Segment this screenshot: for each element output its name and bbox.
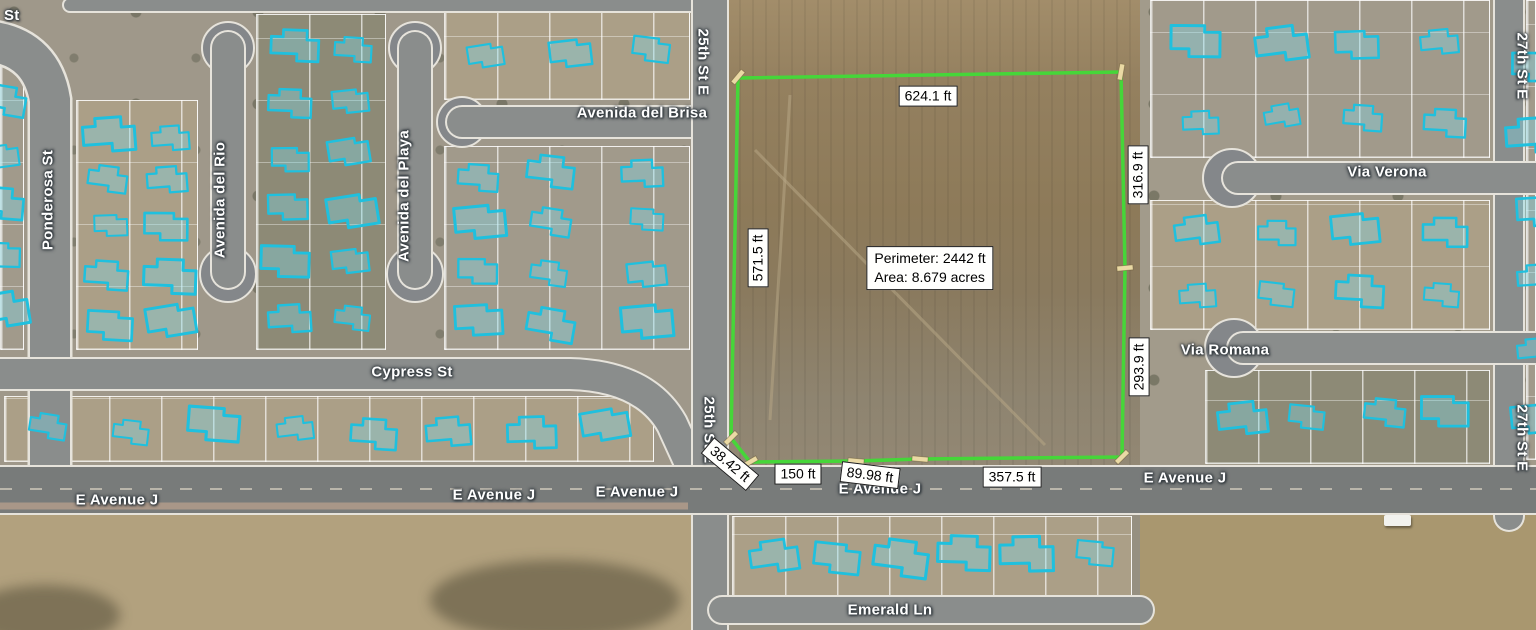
house-outline (331, 88, 369, 114)
house-outline (268, 303, 312, 333)
street-label-27th-st-top: 27th St E (1515, 33, 1530, 100)
house-outline (146, 165, 187, 194)
house-outline (1179, 283, 1216, 309)
house-outline (1335, 31, 1379, 59)
measurement-summary-area: Area: 8.679 acres (874, 268, 985, 287)
street-label-avenida-del-rio: Avenida del Rio (213, 142, 228, 258)
measure-label-left-edge: 571.5 ft (748, 229, 769, 288)
house-outline (84, 260, 129, 291)
house-outline (1173, 214, 1220, 248)
house-outline (813, 542, 861, 575)
house-outline (1420, 28, 1459, 56)
house-outline (87, 164, 129, 194)
house-outline (457, 163, 499, 192)
house-outline (454, 304, 503, 336)
measure-label-bottom-1: 150 ft (774, 464, 821, 485)
house-outline (270, 29, 319, 62)
map-graphics (0, 0, 1536, 630)
map-canvas[interactable]: St Ponderosa St Avenida del Rio Avenida … (0, 0, 1536, 630)
house-outline (87, 310, 133, 341)
measure-label-bottom-3: 357.5 ft (983, 467, 1042, 488)
house-outline (1217, 400, 1269, 437)
house-outline (467, 42, 505, 69)
house-outline (268, 89, 312, 118)
parked-truck (1384, 515, 1411, 526)
house-outline (1000, 536, 1054, 572)
house-outline (626, 260, 667, 288)
roads (0, 0, 1536, 630)
house-outline (151, 125, 190, 152)
house-outline (112, 419, 149, 446)
house-outline (350, 418, 397, 450)
street-label-avenida-del-playa: Avenida del Playa (397, 130, 412, 262)
street-label-e-avenue-j-5: E Avenue J (1144, 471, 1227, 486)
house-outline (1423, 218, 1467, 247)
house-outline (143, 259, 196, 295)
street-label-25th-st-top: 25th St E (696, 29, 711, 96)
street-label-via-romana: Via Romana (1181, 343, 1270, 358)
house-outline (526, 154, 576, 190)
house-outline (580, 406, 631, 443)
measurement-summary-perimeter: Perimeter: 2442 ft (874, 249, 985, 268)
house-outline (1288, 404, 1325, 429)
house-outline (0, 143, 20, 169)
house-outline (334, 37, 372, 63)
street-label-e-avenue-j-3: E Avenue J (596, 485, 679, 500)
street-label-emerald-ln: Emerald Ln (848, 603, 933, 618)
house-outline (261, 246, 310, 278)
house-outline (272, 148, 309, 172)
house-outline (1258, 281, 1295, 307)
house-outline (268, 194, 308, 220)
house-outline (276, 415, 314, 442)
house-outline (620, 303, 674, 340)
house-outline (872, 537, 930, 579)
street-label-27th-st-bottom: 27th St E (1515, 405, 1530, 472)
house-outline (529, 259, 568, 287)
measure-label-right-lower: 293.9 ft (1129, 338, 1150, 397)
measure-label-top-edge: 624.1 ft (899, 86, 958, 107)
measurement-summary: Perimeter: 2442 ft Area: 8.679 acres (866, 246, 993, 290)
house-outline (549, 38, 593, 68)
house-outline (621, 159, 663, 188)
measure-label-right-upper: 316.9 ft (1128, 146, 1149, 205)
house-outline (425, 416, 471, 448)
house-outline (82, 116, 136, 153)
house-outline (145, 302, 197, 340)
house-outline (1343, 104, 1383, 131)
house-outline (0, 243, 20, 267)
house-outline (525, 305, 577, 343)
house-outline (630, 208, 664, 230)
house-outline (529, 206, 572, 238)
house-outline (1363, 397, 1406, 427)
house-outline (1335, 274, 1384, 307)
house-outline (454, 204, 507, 240)
house-outline (326, 192, 379, 230)
house-outline (632, 36, 671, 63)
house-outline (1421, 396, 1468, 426)
street-label-e-avenue-j-1: E Avenue J (76, 493, 159, 508)
house-outline (458, 259, 497, 284)
house-outline (144, 213, 187, 240)
house-outline (1182, 110, 1218, 135)
house-outline (937, 535, 990, 570)
house-outline (331, 248, 370, 275)
house-outline (1254, 24, 1310, 64)
house-outline (1330, 212, 1380, 246)
house-outline (507, 416, 556, 449)
house-outline (1423, 108, 1466, 137)
house-outline (0, 289, 30, 330)
house-outline (1258, 221, 1295, 245)
house-outline (1171, 25, 1220, 56)
house-outline (94, 215, 127, 237)
house-outline (1263, 102, 1301, 130)
street-label-via-verona: Via Verona (1347, 165, 1426, 180)
house-outline (748, 537, 800, 574)
street-label-cypress: Cypress St (371, 365, 452, 380)
house-outline (0, 186, 24, 220)
street-label-avenida-del-brisa: Avenida del Brisa (577, 106, 707, 121)
house-outline (1076, 540, 1114, 566)
street-label-partial: St (4, 8, 20, 23)
house-outline (1423, 282, 1459, 307)
house-outline (327, 136, 371, 168)
street-label-ponderosa: Ponderosa St (41, 150, 56, 250)
house-outline (187, 406, 240, 442)
house-outline (334, 305, 371, 331)
street-label-e-avenue-j-2: E Avenue J (453, 488, 536, 503)
